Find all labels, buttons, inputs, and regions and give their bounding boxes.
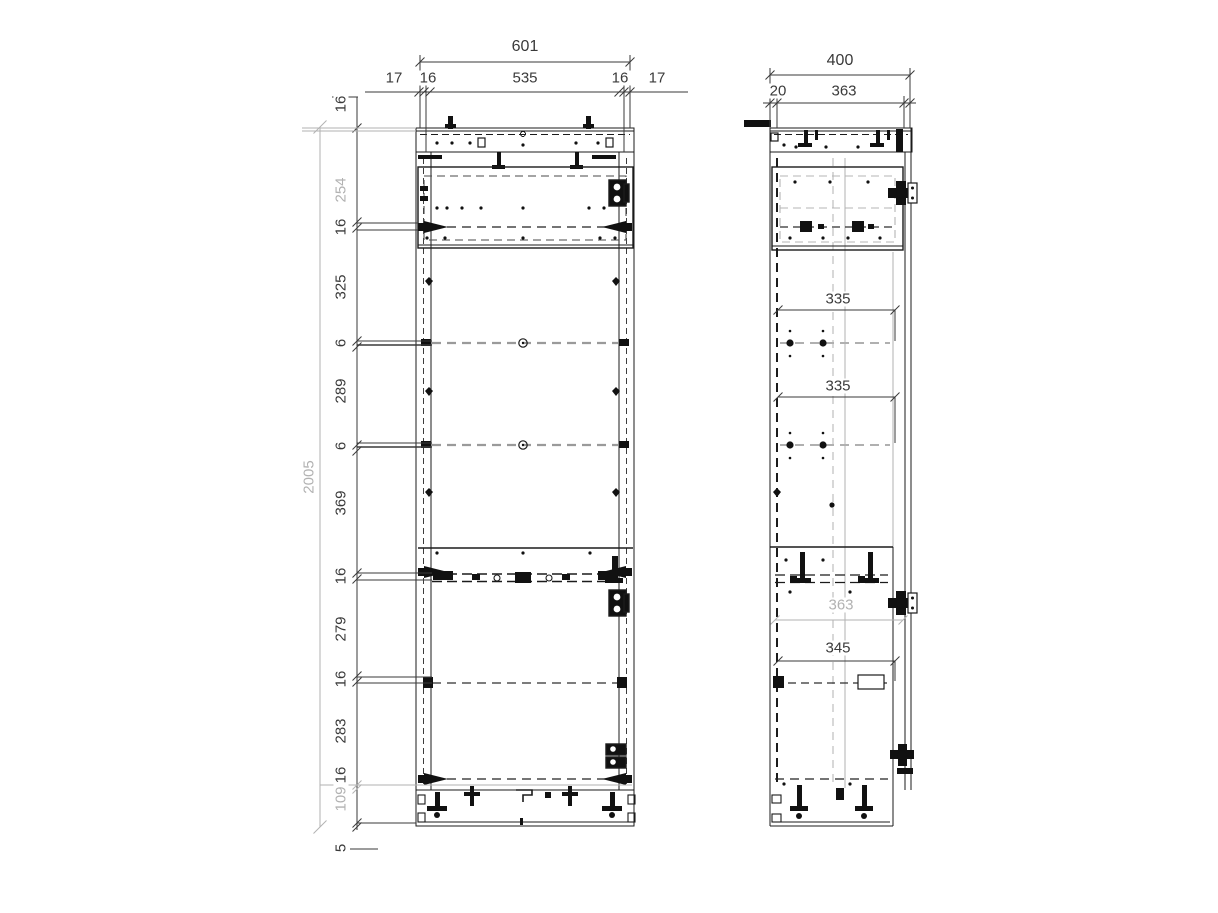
dim-chain-283: 283 <box>334 716 349 745</box>
dim-chain-6b: 6 <box>334 440 349 452</box>
side-top-panel-fittings <box>771 129 903 152</box>
side-hinge-top <box>888 181 917 205</box>
dim-chain-254: 254 <box>334 175 349 204</box>
dim-total-height: 2005 <box>302 458 317 495</box>
front-upper-door-panel <box>418 167 633 248</box>
dim-front-overhang-left: 17 <box>384 71 405 86</box>
dim-side-inner-depth: 363 <box>829 84 858 99</box>
dim-front-total-width: 601 <box>510 39 541 55</box>
dim-side-shelf-b: 335 <box>823 379 852 394</box>
dim-side-back-offset: 20 <box>768 84 789 99</box>
dim-chain-16d: 16 <box>334 765 349 786</box>
front-hinge-middle <box>609 590 629 616</box>
dim-chain-279: 279 <box>334 614 349 643</box>
side-lower-box <box>770 547 893 689</box>
front-left-leg <box>427 792 447 818</box>
front-carcass <box>416 128 634 826</box>
front-shelf-1 <box>421 339 629 347</box>
dim-side-shelf-a: 335 <box>823 292 852 307</box>
dim-front-panel-right: 16 <box>610 71 631 86</box>
dim-front-inner-width: 535 <box>510 71 539 86</box>
side-upper-box <box>772 167 903 250</box>
front-hinge-top <box>609 180 629 206</box>
front-bottom-panel <box>418 773 635 825</box>
front-hinge-bottom <box>606 744 626 768</box>
side-view <box>744 120 917 826</box>
front-top-panel-fittings <box>418 116 616 169</box>
dim-chain-16c: 16 <box>334 669 349 690</box>
front-fixed-shelf <box>418 556 632 583</box>
dim-side-bottom-inner: 345 <box>823 641 852 656</box>
dimension-lines <box>332 55 916 849</box>
front-lower-door <box>418 548 633 555</box>
cad-linework <box>0 0 1218 913</box>
drawing-canvas: 601 17 16 535 16 17 16 254 16 325 6 289 … <box>0 0 1218 913</box>
front-shelf-2 <box>421 441 629 449</box>
side-bottom-fittings <box>772 779 888 822</box>
side-shelf-1 <box>780 330 890 358</box>
dim-top-panel-thickness: 16 <box>334 94 349 115</box>
dim-chain-369: 369 <box>334 488 349 517</box>
dim-front-panel-left: 16 <box>418 71 439 86</box>
dim-chain-16a: 16 <box>334 217 349 238</box>
side-handle <box>744 120 771 127</box>
dim-chain-5: 5 <box>334 842 349 854</box>
front-view <box>416 116 635 826</box>
front-right-leg <box>602 792 622 818</box>
side-rail-fitting <box>773 488 781 497</box>
side-carcass <box>770 128 912 826</box>
front-mid-rail <box>423 677 627 688</box>
dim-chain-109: 109 <box>334 784 349 813</box>
dim-side-total-depth: 400 <box>825 53 856 69</box>
dim-front-overhang-right: 17 <box>647 71 668 86</box>
side-shelf-2 <box>780 432 890 460</box>
side-pin-hole <box>829 502 834 507</box>
dim-chain-325: 325 <box>334 272 349 301</box>
dim-chain-16b: 16 <box>334 566 349 587</box>
dim-side-ref-depth: 363 <box>826 598 855 613</box>
dim-chain-289: 289 <box>334 376 349 405</box>
front-interior-fittings <box>425 277 620 497</box>
dim-chain-6a: 6 <box>334 337 349 349</box>
